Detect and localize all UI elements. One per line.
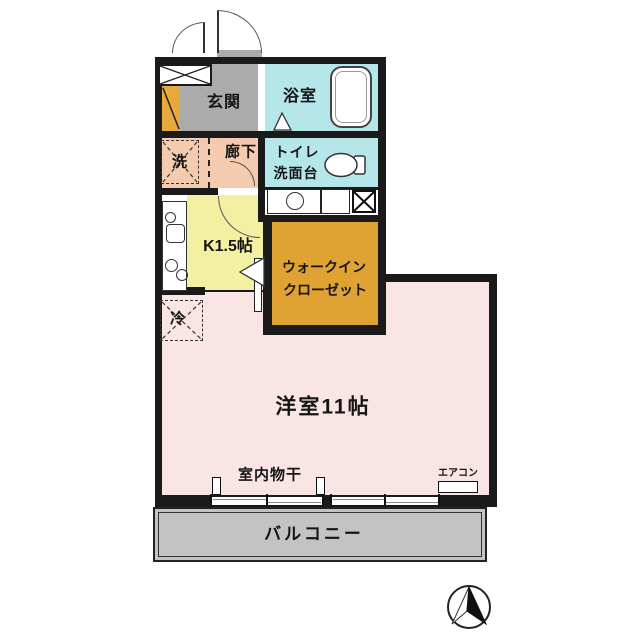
bath-door-triangle-icon bbox=[274, 113, 291, 130]
label-fridge: 冷 bbox=[170, 312, 186, 327]
label-main-room: 洋室11帖 bbox=[275, 397, 370, 418]
label-hallway: 廊下 bbox=[225, 145, 257, 160]
shoe-strip-diagonal bbox=[163, 88, 179, 129]
plan-detail-overlay bbox=[0, 0, 640, 640]
passage-triangle-icon bbox=[240, 258, 264, 286]
label-balcony: バルコニー bbox=[264, 526, 364, 543]
label-entrance: 玄関 bbox=[207, 95, 241, 111]
water-heater-x-icon bbox=[354, 192, 374, 211]
north-arrow-icon bbox=[448, 586, 490, 628]
label-washer: 洗 bbox=[172, 155, 188, 170]
label-toilet-1: トイレ bbox=[275, 145, 320, 159]
label-closet-1: ウォークイン bbox=[282, 260, 366, 274]
label-closet-2: クローゼット bbox=[283, 283, 367, 297]
label-bathroom: 浴室 bbox=[283, 89, 317, 105]
label-aircon: エアコン bbox=[438, 469, 478, 479]
floorplan-canvas: 玄関 浴室 洗 廊下 トイレ 洗面台 K1.5帖 ウォークイン クローゼット 冷… bbox=[0, 0, 640, 640]
toilet-icon bbox=[325, 154, 365, 177]
label-drying: 室内物干 bbox=[238, 468, 302, 483]
label-toilet-2: 洗面台 bbox=[274, 166, 319, 180]
label-kitchen: K1.5帖 bbox=[203, 239, 253, 255]
shoe-cabinet-x-icon bbox=[160, 66, 210, 84]
